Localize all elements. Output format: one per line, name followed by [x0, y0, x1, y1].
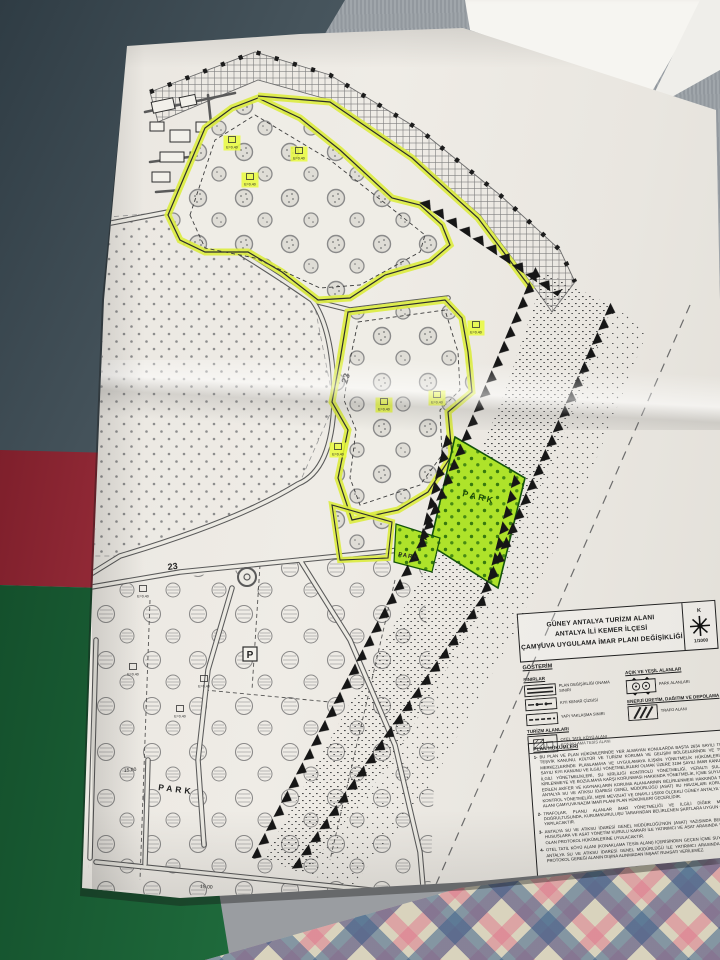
svg-text:E=0.40: E=0.40 — [470, 331, 482, 335]
approval-boundary-symbol-icon — [524, 683, 557, 697]
legend-item-label: PARK ALANLARI — [659, 680, 690, 687]
roundabout — [238, 568, 256, 586]
photo-of-zoning-map: { "title_block": { "line1": "GÜNEY ANTAL… — [0, 0, 720, 960]
building-approach-symbol-icon — [526, 712, 559, 726]
road-number-label: 23 — [167, 561, 178, 572]
legend-item-label: YAPI YAKLAŞMA SINIRI — [561, 712, 605, 720]
svg-text:E=0.40: E=0.40 — [244, 183, 256, 187]
compass-star-icon — [688, 614, 711, 637]
parking-symbol: P — [243, 647, 257, 661]
plan-note-1: 1- BU PLAN VE PLAN HÜKÜMLERİNDE YER ALMA… — [534, 741, 720, 809]
legend-item-label: KIYI KENAR ÇİZGİSİ — [560, 698, 598, 705]
legend-item-label: TRAFO ALANI — [661, 707, 687, 714]
park-area-symbol-icon — [625, 676, 656, 696]
north-letter: K — [697, 608, 701, 614]
north-arrow-cell: K 1/1000 — [682, 601, 717, 650]
legend-item-label: PLAN DEĞİŞİKLİĞİ ONAMA SINIRI — [559, 679, 621, 693]
svg-text:E=0.40: E=0.40 — [293, 157, 305, 161]
coastal-edge-line-symbol-icon — [525, 697, 558, 711]
svg-text:E=0.40: E=0.40 — [226, 146, 238, 150]
scale-label: 1/1000 — [694, 637, 708, 643]
legend-item-park: PARK ALANLARI — [625, 671, 720, 696]
svg-text:P: P — [247, 650, 254, 661]
plan-title: GÜNEY ANTALYA TURİZM ALANI ANTALYA İLİ K… — [518, 603, 686, 661]
transformer-area-symbol-icon — [627, 704, 658, 721]
svg-text:E=0.40: E=0.40 — [198, 685, 210, 689]
note-text: BU PLAN VE PLAN HÜKÜMLERİNDE YER ALMAYAN… — [539, 741, 720, 809]
svg-text:E=0.40: E=0.40 — [332, 453, 344, 457]
svg-text:E=0.40: E=0.40 — [174, 715, 186, 719]
